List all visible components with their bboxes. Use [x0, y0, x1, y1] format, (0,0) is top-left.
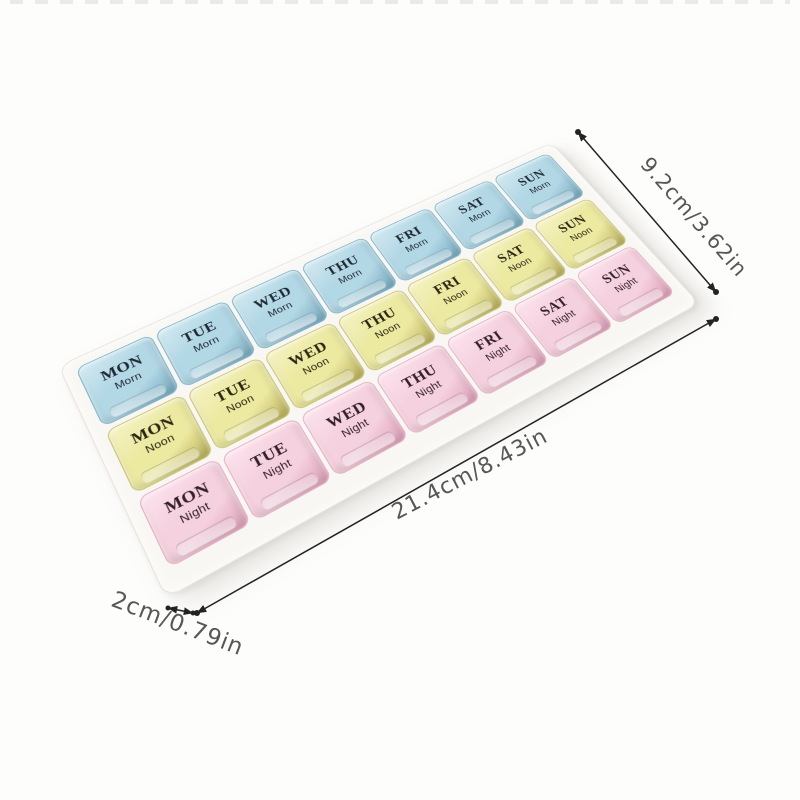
dimension-endpoint-dot — [713, 316, 719, 322]
product-photo: MONMornTUEMornWEDMornTHUMornFRIMornSATMo… — [0, 0, 800, 800]
dimension-endpoint-dot — [575, 129, 581, 135]
dimension-endpoint-dot — [713, 289, 719, 295]
pill-grid: MONMornTUEMornWEDMornTHUMornFRIMornSATMo… — [75, 153, 675, 568]
dimension-endpoint-dot — [194, 610, 200, 616]
pill-organizer-tray: MONMornTUEMornWEDMornTHUMornFRIMornSATMo… — [58, 142, 700, 599]
top-edge-artifact — [10, 0, 790, 4]
dimension-label-depth: 2cm/0.79in — [100, 584, 254, 664]
